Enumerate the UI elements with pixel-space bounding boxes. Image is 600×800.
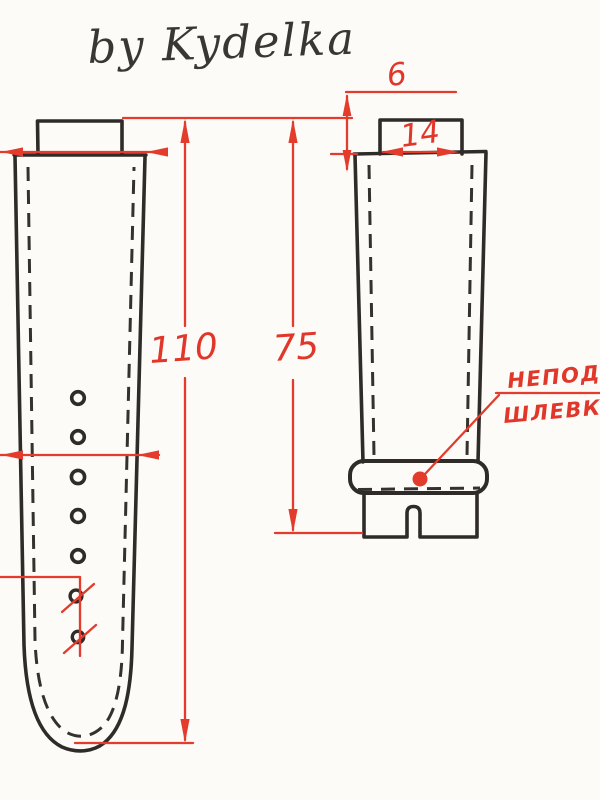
right-strap-notched-end (364, 493, 477, 537)
dimension-label-6: 6 (385, 56, 408, 94)
strap-hole (71, 470, 84, 483)
arrowhead-left-icon (1, 147, 23, 156)
left-strap (0, 121, 146, 751)
dimension-left-strap-width-middle (0, 450, 159, 459)
strap-hole (72, 510, 85, 523)
watch-strap-technical-drawing: by Kydelka (0, 0, 600, 800)
right-strap-stitching-left (369, 165, 374, 456)
strap-hole (72, 550, 85, 563)
callout-text-line1: НЕПОДВИ (506, 358, 600, 393)
scanned-drawing-sheet: by Kydelka (0, 0, 600, 800)
callout-text-line2: ШЛЕВКА (502, 394, 600, 428)
strap-hole (72, 431, 85, 444)
arrowhead-up-icon (288, 119, 297, 143)
arrowhead-up-icon (343, 94, 352, 116)
left-strap-outline (15, 156, 145, 751)
dimension-75: 75 (272, 119, 362, 533)
dimension-label-75: 75 (272, 326, 321, 370)
keeper-callout: НЕПОДВИ ШЛЕВКА (413, 358, 600, 487)
dimension-annotations: 110 75 6 14 (0, 56, 459, 743)
arrowhead-left-icon (381, 147, 403, 156)
right-strap-left-edge (355, 155, 363, 462)
arrowhead-right-icon (146, 147, 168, 156)
arrowhead-right-icon (137, 450, 159, 459)
arrowhead-left-icon (1, 450, 23, 459)
left-strap-tab (38, 121, 123, 154)
handwritten-title: by Kydelka (87, 12, 357, 74)
dimension-label-14: 14 (398, 114, 442, 155)
hole-cross-mark (62, 584, 94, 612)
arrowhead-down-icon (288, 509, 297, 533)
arrowhead-down-icon (180, 719, 189, 743)
strap-hole (72, 392, 85, 405)
arrowhead-up-icon (180, 119, 189, 143)
dimension-110: 110 (75, 119, 219, 743)
keeper-bottom-stitching (358, 488, 480, 490)
right-strap-stitching-right (467, 165, 472, 456)
dimension-label-110: 110 (148, 326, 219, 372)
